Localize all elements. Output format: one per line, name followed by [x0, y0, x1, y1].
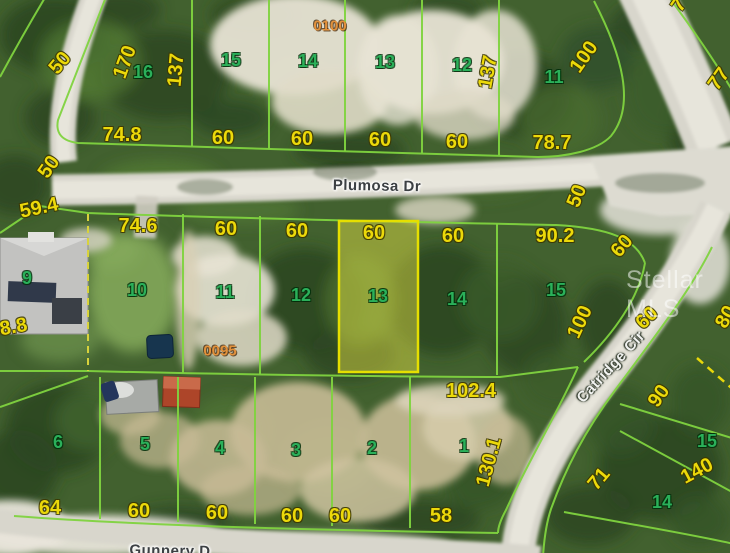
aerial-parcel-map[interactable]: 17013774.86060606013710078.7505077759.47… — [0, 0, 730, 553]
red-roof-ridge — [163, 376, 200, 389]
house-garage — [28, 232, 54, 242]
pool — [146, 334, 173, 358]
roof-dark-section — [52, 298, 82, 324]
solar-panels — [8, 281, 57, 303]
driveway — [134, 195, 158, 238]
map-graphics — [0, 0, 730, 553]
watermark: Stellar MLS — [626, 266, 730, 324]
highlighted-lot-13[interactable] — [339, 221, 418, 372]
